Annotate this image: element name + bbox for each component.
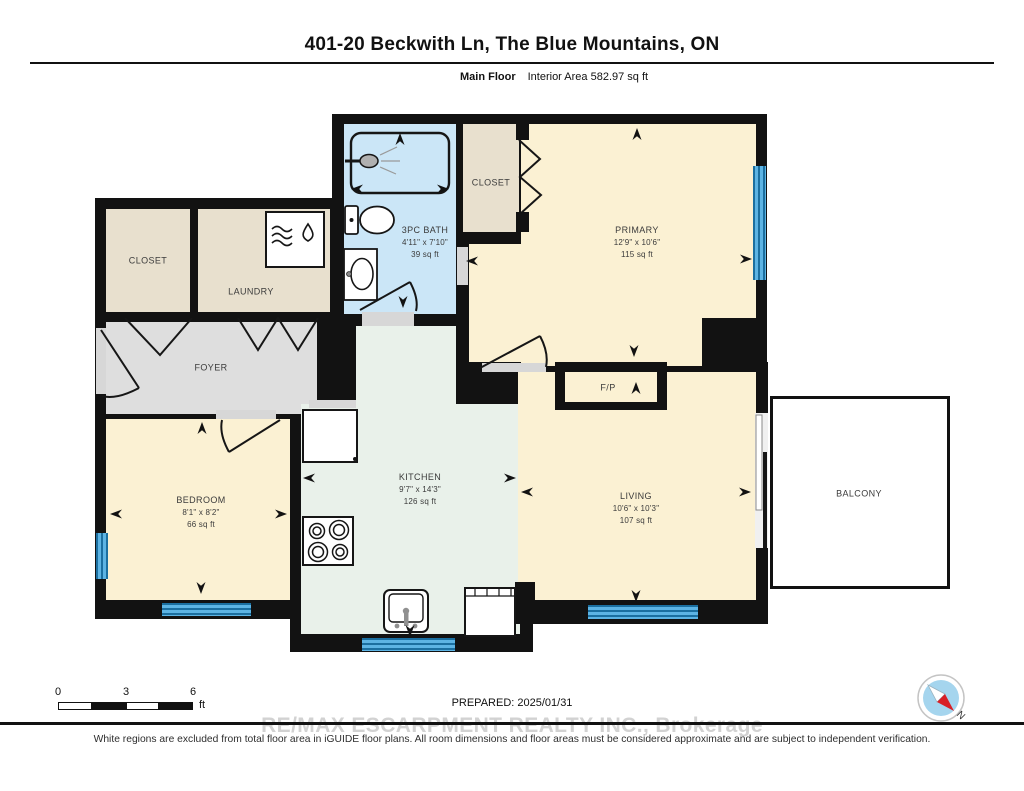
floor-subtitle: Main Floor Interior Area 582.97 sq ft	[460, 71, 648, 83]
window-kitchen	[362, 638, 455, 651]
window-living	[588, 605, 698, 619]
room-floor-kitchen-upper	[356, 326, 456, 408]
footer-divider	[0, 722, 1024, 725]
room-label-closet2: CLOSET	[472, 176, 510, 189]
window-primary	[753, 166, 766, 280]
doorway-foyer-kitchen	[309, 400, 356, 408]
window-bedroom-left	[96, 533, 108, 579]
room-label-bath: 3PC BATH 4'11" x 7'10" 39 sq ft	[402, 224, 449, 260]
room-label-bedroom: BEDROOM 8'1" x 8'2" 66 sq ft	[176, 494, 225, 530]
doorway-hall-bath	[457, 247, 468, 285]
wall-notch-primary	[702, 318, 756, 366]
room-label-closet1: CLOSET	[129, 254, 167, 267]
doorway-entry	[96, 328, 106, 394]
title-divider	[30, 62, 994, 64]
doorway-bedroom	[216, 410, 276, 419]
floor-plan-page: 401-20 Beckwith Ln, The Blue Mountains, …	[0, 0, 1024, 791]
room-floor-hall	[469, 244, 521, 362]
page-title: 401-20 Beckwith Ln, The Blue Mountains, …	[0, 34, 1024, 56]
prepared-date: PREPARED: 2025/01/31	[0, 697, 1024, 709]
room-floor-kitchen	[301, 404, 520, 634]
room-label-foyer: FOYER	[194, 361, 227, 374]
doorway-primary	[482, 363, 546, 372]
wall-stub-kitchen-living	[515, 582, 535, 624]
floor-name: Main Floor	[460, 71, 516, 83]
room-label-primary: PRIMARY 12'9" x 10'6" 115 sq ft	[614, 224, 660, 260]
window-bedroom-bottom	[162, 603, 251, 616]
doorway-bath	[362, 312, 414, 326]
room-label-living: LIVING 10'6" x 10'3" 107 sq ft	[613, 490, 659, 526]
room-label-fireplace: F/P	[600, 381, 615, 394]
room-label-kitchen: KITCHEN 9'7" x 14'3" 126 sq ft	[399, 471, 441, 507]
room-floor-bath	[344, 124, 456, 314]
interior-area: Interior Area 582.97 sq ft	[528, 71, 648, 83]
room-label-balcony: BALCONY	[836, 487, 882, 500]
disclaimer-text: White regions are excluded from total fl…	[0, 734, 1024, 745]
room-label-laundry: LAUNDRY	[228, 285, 274, 298]
